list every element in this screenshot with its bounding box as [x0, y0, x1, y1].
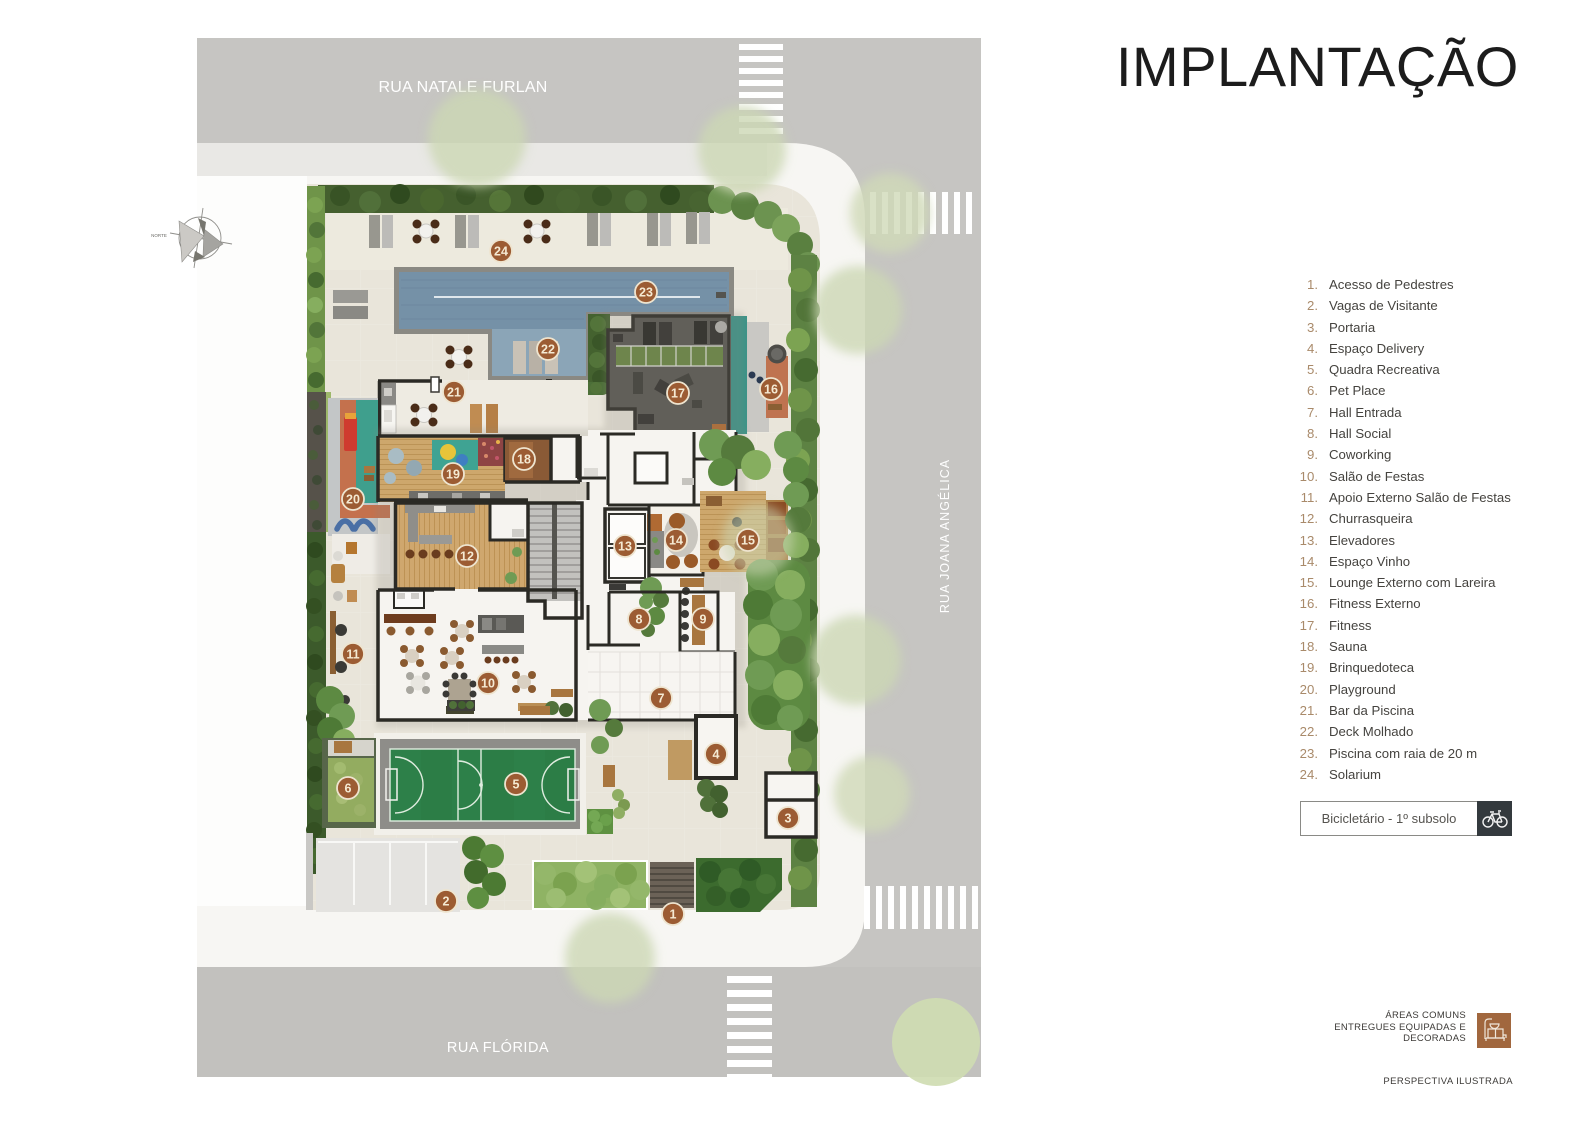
- svg-text:NORTE: NORTE: [151, 233, 167, 238]
- svg-text:RUA JOANA ANGÉLICA: RUA JOANA ANGÉLICA: [937, 459, 952, 613]
- svg-text:13: 13: [618, 540, 632, 554]
- svg-text:21: 21: [447, 386, 461, 400]
- svg-text:23: 23: [639, 286, 653, 300]
- svg-text:3: 3: [785, 812, 792, 826]
- svg-text:22: 22: [541, 343, 555, 357]
- svg-text:12: 12: [460, 550, 474, 564]
- svg-text:RUA FLÓRIDA: RUA FLÓRIDA: [447, 1039, 549, 1056]
- svg-text:6: 6: [345, 782, 352, 796]
- svg-text:16: 16: [764, 383, 778, 397]
- svg-text:5: 5: [513, 778, 520, 792]
- svg-text:4: 4: [713, 748, 720, 762]
- svg-text:15: 15: [741, 534, 755, 548]
- svg-text:8: 8: [636, 613, 643, 627]
- svg-text:19: 19: [446, 468, 460, 482]
- svg-text:10: 10: [481, 677, 495, 691]
- svg-text:9: 9: [700, 613, 707, 627]
- svg-text:20: 20: [346, 493, 360, 507]
- svg-text:18: 18: [517, 453, 531, 467]
- svg-text:14: 14: [669, 534, 683, 548]
- svg-text:24: 24: [494, 245, 508, 259]
- svg-text:7: 7: [658, 692, 665, 706]
- svg-text:2: 2: [443, 895, 450, 909]
- svg-text:1: 1: [670, 908, 677, 922]
- svg-text:17: 17: [671, 387, 685, 401]
- svg-text:11: 11: [346, 648, 359, 662]
